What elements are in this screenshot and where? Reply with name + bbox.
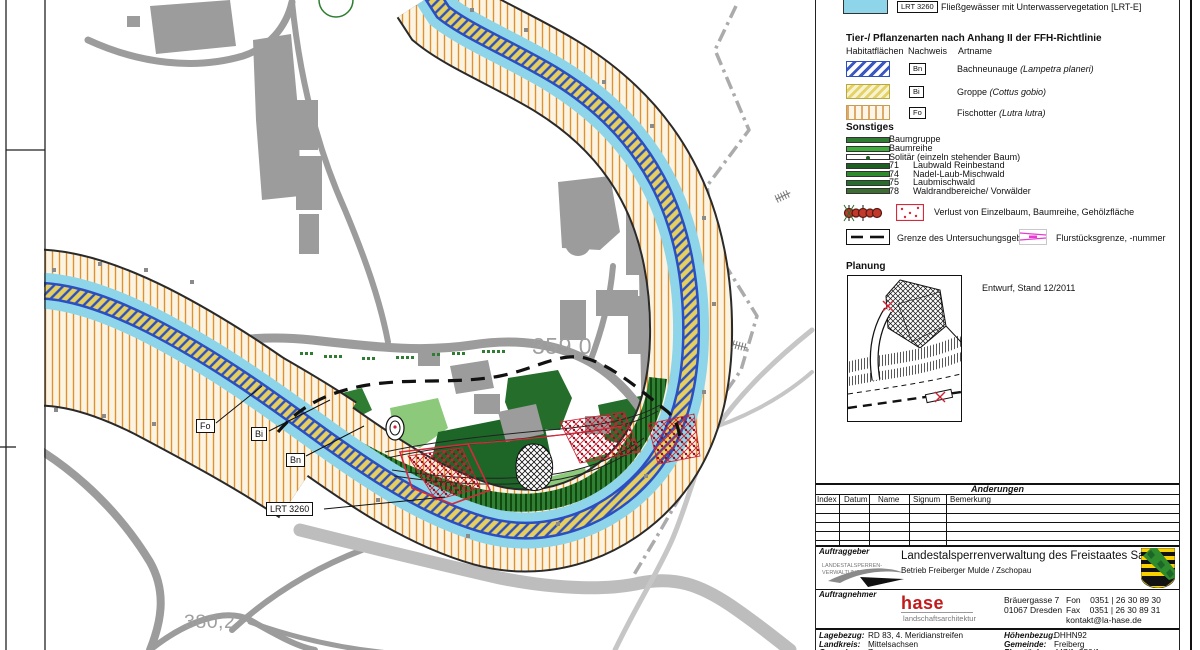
auftraggeber-unit: Betrieb Freiberger Mulde / Zschopau [901,566,1031,575]
sonstiges-heading: Sonstiges [846,122,894,133]
callout-bn: Bn [286,453,305,467]
hase-logo-rule [901,612,973,613]
table-line [816,522,1179,523]
table-line [816,531,1179,532]
planung-note: Entwurf, Stand 12/2011 [982,283,1075,294]
groppe-code: Bi [909,86,924,98]
table-bottom-border [816,545,1179,547]
lrt-label: Fließgewässer mit Unterwasservegetation … [941,2,1141,13]
fischotter-label: Fischotter (Lutra lutra) [957,108,1046,119]
wald78-label: Waldrandbereiche/ Vorwälder [913,186,1031,197]
species-name: Groppe [957,87,990,97]
species-latin: (Cottus gobio) [990,87,1047,97]
fischotter-code: Fo [909,107,926,119]
species-col-art: Artname [958,46,992,57]
wald75-swatch [846,180,890,186]
species-latin: (Lutra lutra) [999,108,1046,118]
solitaer-swatch [846,154,890,160]
hase-logo: hase [901,593,944,614]
map-canvas: 359,0 380,2 [0,0,818,650]
planung-heading: Planung [846,261,885,272]
col-datum: Datum [844,495,868,504]
tree-loss-icon [842,201,884,225]
bachneunauge-label: Bachneunauge (Lampetra planeri) [957,64,1094,75]
species-heading: Tier-/ Pflanzenarten nach Anhang II der … [846,33,1102,44]
species-name: Fischotter [957,108,999,118]
species-col-nachweis: Nachweis [908,46,947,57]
aenderungen-title: Änderungen [816,484,1179,494]
contour-label-upper: 359,0 [532,333,592,359]
lrt-swatch [843,0,888,14]
georef-top-border [816,628,1179,630]
contour-label-lower: 380,2 [184,611,235,633]
callout-lrt3260: LRT 3260 [266,502,313,516]
parcel-swatch [1019,229,1047,245]
lsv-logo-text1: LANDESTALSPERREN- [822,563,882,569]
lsv-logo: LANDESTALSPERREN- VERWALTUNG [820,555,908,587]
table-vline [909,494,910,545]
loss-area-swatch [896,204,924,221]
callout-fo: Fo [196,419,215,433]
callout-bi: Bi [251,427,267,441]
table-vline [946,494,947,545]
col-signum: Signum [913,495,940,504]
bachneunauge-code: Bn [909,63,926,75]
bachneunauge-swatch [846,61,890,77]
saxony-coat-of-arms [1141,548,1175,588]
lrt-code: LRT 3260 [897,1,938,13]
table-line [816,494,1179,495]
sheet-edge-line [1190,0,1192,650]
col-bemerkung: Bemerkung [950,495,991,504]
hase-logo-sub: landschaftsarchitektur [903,614,976,623]
groppe-label: Groppe (Cottus gobio) [957,87,1046,98]
col-index: Index [817,495,837,504]
planung-thumbnail [847,275,962,422]
species-name: Bachneunauge [957,64,1020,74]
auftraggeber-org: Landestalsperrenverwaltung des Freistaat… [901,550,1175,562]
firm-email: kontakt@la-hase.de [1066,616,1142,626]
wald78-swatch [846,188,890,194]
study-boundary-swatch [846,229,890,245]
groppe-swatch [846,84,890,99]
auftragnehmer-label: Auftragnehmer [819,590,876,599]
col-name: Name [878,495,899,504]
table-line [816,504,1179,505]
firm-city: 01067 Dresden [1004,606,1062,616]
species-col-habitat: Habitatflächen [846,46,904,57]
table-vline [869,494,870,545]
baumreihe-swatch [846,146,890,152]
plan-sheet: 359,0 380,2 Fo Bi Bn LRT 3260 LRT 3260 F… [0,0,1200,650]
fischotter-swatch [846,105,890,120]
bridge-icon [731,189,792,352]
table-line [816,540,1179,541]
table-vline [839,494,840,545]
wald74-swatch [846,171,890,177]
flurstueck-label: Flurstücksgrenze, -nummer [1056,233,1166,244]
table-line [816,513,1179,514]
wald78-num: 78 [889,186,899,197]
legend-panel: LRT 3260 Fließgewässer mit Unterwasserve… [815,0,1180,650]
wald71-swatch [846,163,890,169]
solitaer-dot [866,156,870,160]
verlust-label: Verlust von Einzelbaum, Baumreihe, Gehöl… [934,207,1134,218]
species-latin: (Lampetra planeri) [1020,64,1094,74]
baumgruppe-swatch [846,137,890,143]
